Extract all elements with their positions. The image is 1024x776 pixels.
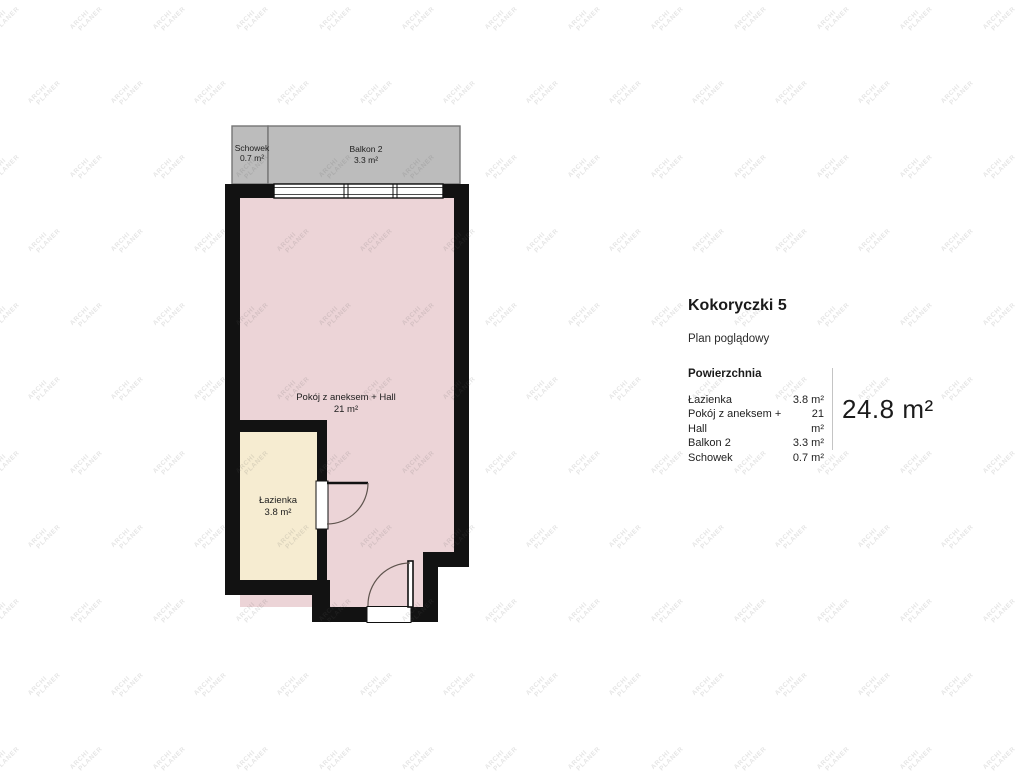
wall-top-left-stub xyxy=(225,184,274,198)
area-row-value: 3.8 m² xyxy=(793,393,824,407)
window-band xyxy=(274,184,443,198)
bathroom-area: 3.8 m² xyxy=(265,507,292,518)
total-area: 24.8 m² xyxy=(842,394,934,425)
area-row-value: 0.7 m² xyxy=(793,451,824,465)
area-row-lazienka: Łazienka 3.8 m² xyxy=(688,393,824,407)
page: Schowek 0.7 m² Balkon 2 3.3 m² Pokój z a… xyxy=(0,0,1024,750)
area-row-label: Balkon 2 xyxy=(688,436,731,450)
area-row-value: 21 m² xyxy=(797,407,824,436)
area-row-value: 3.3 m² xyxy=(793,436,824,450)
wall-right xyxy=(454,184,469,567)
outside-patch xyxy=(438,567,476,627)
floor-plan: Schowek 0.7 m² Balkon 2 3.3 m² Pokój z a… xyxy=(0,0,1024,750)
divider-line xyxy=(832,368,833,450)
balcony-outline xyxy=(232,126,460,184)
area-row-label: Łazienka xyxy=(688,393,732,407)
balkon-area: 3.3 m² xyxy=(354,155,378,165)
wall-left xyxy=(225,184,240,595)
main-room-area: 21 m² xyxy=(334,404,358,415)
bathroom-fill xyxy=(240,432,317,580)
entrance-door-leaf xyxy=(408,561,413,607)
area-row-label: Schowek xyxy=(688,451,733,465)
area-row-schowek: Schowek 0.7 m² xyxy=(688,451,824,465)
main-room-label: Pokój z aneksem + Hall xyxy=(296,392,396,403)
balkon-label: Balkon 2 xyxy=(349,144,382,154)
plan-subtitle: Plan poglądowy xyxy=(688,333,769,345)
schowek-area: 0.7 m² xyxy=(240,153,264,163)
wall-bathroom-top xyxy=(240,420,327,432)
area-row-label: Pokój z aneksem + Hall xyxy=(688,407,797,436)
area-table: Łazienka 3.8 m² Pokój z aneksem + Hall 2… xyxy=(688,393,824,465)
plan-title: Kokoryczki 5 xyxy=(688,297,787,315)
area-row-balkon: Balkon 2 3.3 m² xyxy=(688,436,824,450)
bathroom-label: Łazienka xyxy=(259,495,298,506)
area-row-pokoj: Pokój z aneksem + Hall 21 m² xyxy=(688,407,824,436)
schowek-label: Schowek xyxy=(235,143,270,153)
area-section-heading: Powierzchnia xyxy=(688,368,762,380)
